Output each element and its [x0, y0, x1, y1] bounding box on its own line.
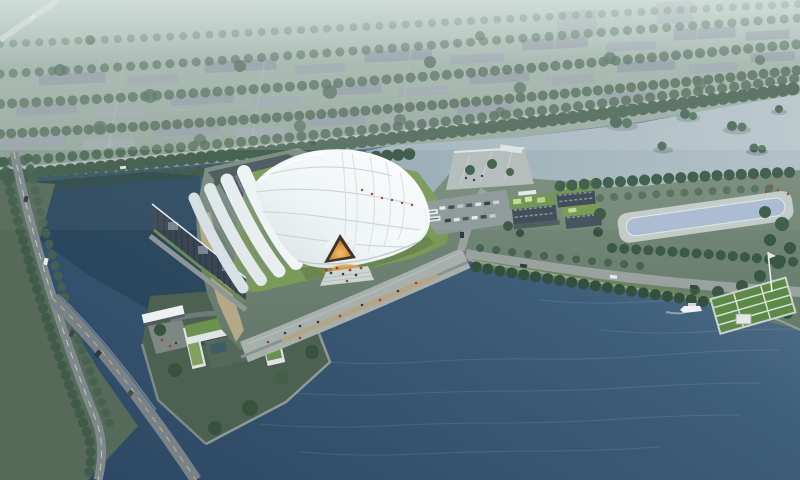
pier-cabin [736, 314, 751, 324]
aerial-rendering [0, 0, 800, 480]
rendering-stage [0, 0, 800, 480]
haze-overlay [0, 0, 800, 230]
